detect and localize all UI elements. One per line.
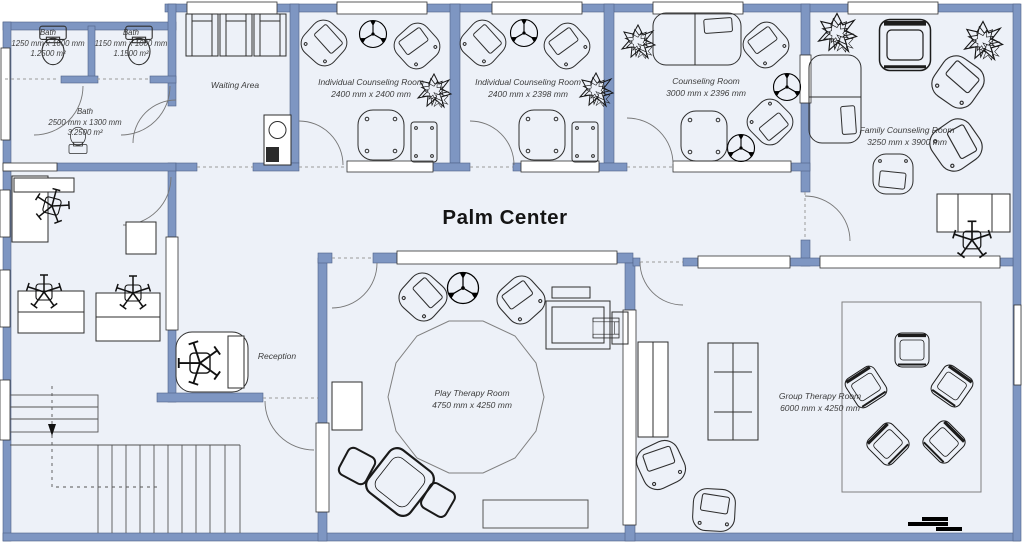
copier-icon: [264, 115, 291, 165]
room-area: 1.1500 m²: [95, 49, 168, 60]
room-label-individual-counseling-2: Individual Counseling Room 2400 mm x 239…: [475, 77, 581, 101]
room-label-waiting-area: Waiting Area: [211, 80, 259, 92]
room-label-family-counseling: Family Counseling Room 3250 mm x 3900 mm: [860, 125, 955, 149]
room-label-bath-a: Bath 1250 mm x 1000 mm 1.2500 m²: [11, 28, 84, 60]
room-name: Bath: [95, 28, 168, 39]
room-name: Bath: [11, 28, 84, 39]
floor-plan: Bath 1250 mm x 1000 mm 1.2500 m² Bath 11…: [0, 0, 1024, 546]
room-name: Reception: [258, 351, 296, 363]
room-label-play-therapy: Play Therapy Room 4750 mm x 4250 mm: [432, 388, 512, 412]
room-dimensions: 1250 mm x 1000 mm: [11, 39, 84, 50]
room-name: Play Therapy Room: [432, 388, 512, 400]
room-dimensions: 6000 mm x 4250 mm: [779, 403, 861, 415]
room-dimensions: 3250 mm x 3900 mm: [860, 137, 955, 149]
room-dimensions: 2400 mm x 2400 mm: [318, 89, 424, 101]
room-name: Bath: [48, 107, 121, 118]
room-label-bath-main: Bath 2500 mm x 1300 mm 3.2500 m²: [48, 107, 121, 139]
cabinet-icon: [638, 342, 668, 437]
room-dimensions: 2500 mm x 1300 mm: [48, 118, 121, 129]
room-dimensions: 3000 mm x 2396 mm: [666, 88, 746, 100]
room-dimensions: 1150 mm x 1000 mm: [95, 39, 168, 50]
shelf-icon: [332, 382, 362, 430]
room-label-individual-counseling-1: Individual Counseling Room 2400 mm x 240…: [318, 77, 424, 101]
room-dimensions: 2400 mm x 2398 mm: [475, 89, 581, 101]
room-name: Individual Counseling Room: [475, 77, 581, 89]
room-label-reception: Reception: [258, 351, 296, 363]
room-label-bath-b: Bath 1150 mm x 1000 mm 1.1500 m²: [95, 28, 168, 60]
room-area: 1.2500 m²: [11, 49, 84, 60]
plan-title: Palm Center: [442, 206, 567, 230]
room-name: Individual Counseling Room: [318, 77, 424, 89]
room-name: Counseling Room: [666, 76, 746, 88]
room-name: Family Counseling Room: [860, 125, 955, 137]
room-label-group-therapy: Group Therapy Room 6000 mm x 4250 mm: [779, 391, 861, 415]
desk-icon: [937, 194, 1010, 232]
room-name: Group Therapy Room: [779, 391, 861, 403]
room-name: Waiting Area: [211, 80, 259, 92]
room-label-counseling: Counseling Room 3000 mm x 2396 mm: [666, 76, 746, 100]
reception-desk-icon: [176, 332, 248, 392]
room-dimensions: 4750 mm x 4250 mm: [432, 400, 512, 412]
room-area: 3.2500 m²: [48, 128, 121, 139]
